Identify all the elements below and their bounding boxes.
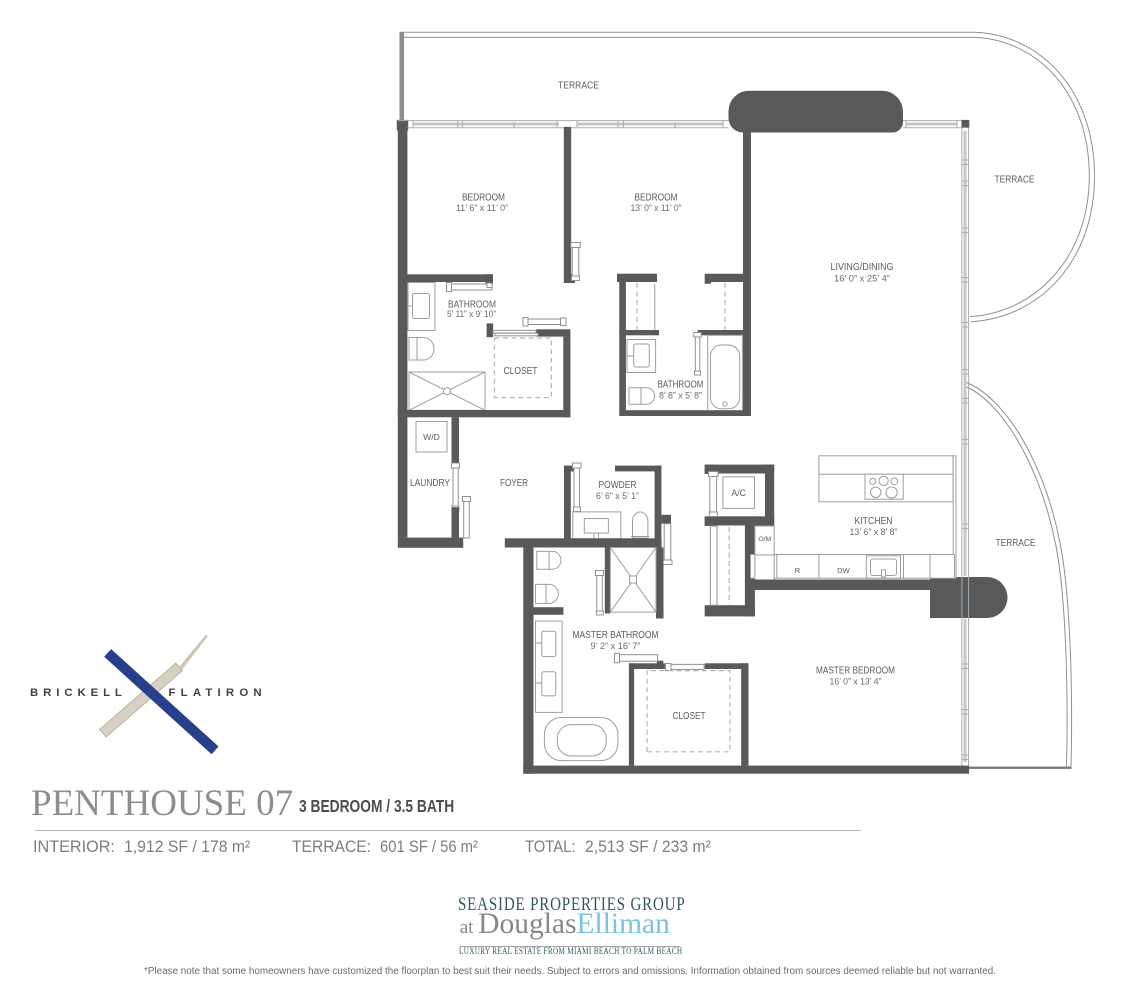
svg-text:DW: DW [837,566,850,575]
svg-text:11’ 6” x 11’ 0”: 11’ 6” x 11’ 0” [456,203,508,214]
svg-text:LIVING/DINING: LIVING/DINING [831,262,894,273]
svg-text:CLOSET: CLOSET [504,366,538,377]
svg-text:W/D: W/D [423,432,440,442]
svg-text:MASTER BEDROOM: MASTER BEDROOM [816,666,895,677]
svg-text:MASTER BATHROOM: MASTER BATHROOM [573,630,659,641]
svg-text:9’ 2” x 16’ 7”: 9’ 2” x 16’ 7” [591,641,641,652]
svg-text:BEDROOM: BEDROOM [462,193,505,204]
svg-text:FOYER: FOYER [500,478,528,489]
svg-text:KITCHEN: KITCHEN [855,516,893,527]
svg-text:TERRACE: TERRACE [996,538,1036,549]
svg-text:BEDROOM: BEDROOM [635,193,678,204]
svg-text:CLOSET: CLOSET [673,711,706,722]
svg-text:A/C: A/C [731,488,746,498]
svg-text:O/M: O/M [758,536,771,543]
svg-text:LAUNDRY: LAUNDRY [410,478,450,489]
svg-text:16’ 0” x 25’ 4”: 16’ 0” x 25’ 4” [834,273,890,284]
svg-text:6’ 6” x 5’ 1”: 6’ 6” x 5’ 1” [596,491,639,502]
svg-text:13’ 6” x 8’ 8”: 13’ 6” x 8’ 8” [850,527,898,538]
svg-text:TERRACE: TERRACE [558,81,599,92]
svg-text:8’ 8” x 5’ 8”: 8’ 8” x 5’ 8” [659,391,702,402]
svg-text:BATHROOM: BATHROOM [658,380,704,391]
svg-text:TERRACE: TERRACE [995,175,1035,186]
svg-text:5’ 11” x 9’ 10”: 5’ 11” x 9’ 10” [447,309,496,320]
svg-text:16’ 0” x 13’ 4”: 16’ 0” x 13’ 4” [830,677,882,688]
svg-text:POWDER: POWDER [599,480,637,491]
svg-text:13’ 0” x 11’ 0”: 13’ 0” x 11’ 0” [631,203,682,214]
svg-text:R: R [795,566,801,575]
